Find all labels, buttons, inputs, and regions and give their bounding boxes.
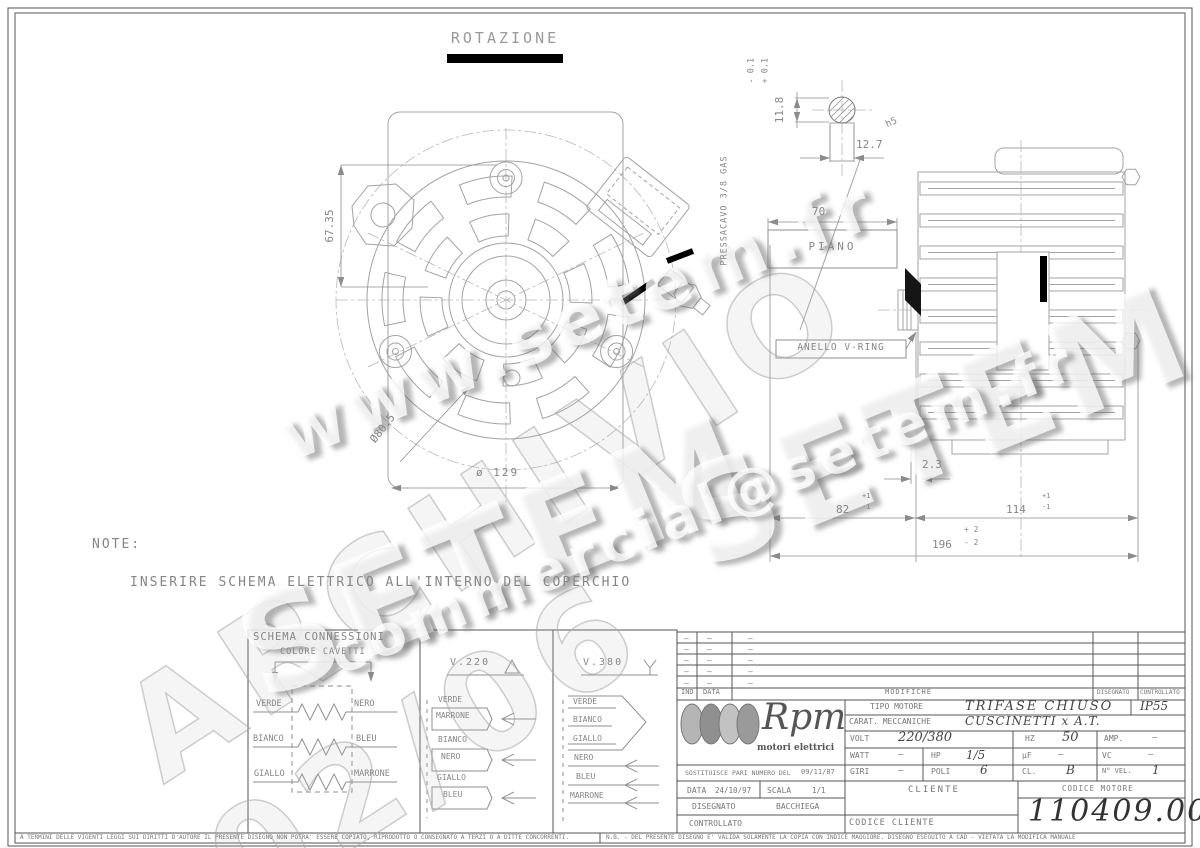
terminal-box bbox=[585, 156, 690, 258]
nvel-label: N° VEL. bbox=[1102, 768, 1132, 776]
revision-dash: – bbox=[748, 668, 753, 677]
setem-url-watermark: www.setem.fr bbox=[265, 161, 888, 478]
protezione-value: IP55 bbox=[1140, 700, 1168, 713]
v380-wire: BLEU bbox=[576, 773, 595, 782]
uf-value: – bbox=[1058, 751, 1063, 761]
dim-11-8: 11.8 bbox=[774, 88, 786, 132]
revision-dash: – bbox=[684, 635, 689, 644]
poli-value: 6 bbox=[980, 764, 988, 777]
bolt-hex bbox=[1122, 169, 1140, 185]
dim-70: 70 bbox=[812, 206, 825, 218]
hp-value: 1/5 bbox=[966, 749, 985, 762]
winding-color: BIANCO bbox=[253, 735, 284, 744]
col-modifiche: MODIFICHE bbox=[885, 689, 932, 697]
v380-wire: BIANCO bbox=[573, 716, 602, 725]
footer-left: A TERMINI DELLE VIGENTI LEGGI SUI DIRITT… bbox=[20, 835, 569, 842]
tol-plus-01: + 0.1 bbox=[761, 50, 770, 92]
v220-title: V.220 bbox=[450, 657, 490, 668]
data-label: DATA bbox=[687, 787, 706, 796]
shaft-flinger bbox=[905, 268, 921, 316]
col-disegnato: DISEGNATO bbox=[1097, 690, 1130, 697]
archive-stamp-watermark: ARCHIVIO 02/06 bbox=[95, 78, 1193, 848]
nameplate bbox=[997, 252, 1049, 370]
v380-wire: VERDE bbox=[573, 698, 597, 707]
tipo-motore-value: TRIFASE CHIUSO bbox=[965, 700, 1113, 714]
motor-body bbox=[918, 172, 1125, 440]
v380-wire: MARRONE bbox=[570, 792, 604, 801]
revision-dash: – bbox=[748, 680, 753, 689]
pressacavo-label: PRESSACAVO 3/8 GAS bbox=[720, 162, 729, 266]
revision-dash: – bbox=[684, 668, 689, 677]
star-symbol bbox=[644, 660, 656, 675]
revision-dash: – bbox=[684, 646, 689, 655]
dim-flange-129: ø 129 bbox=[476, 467, 519, 479]
drawing-sheet: ROTAZIONE 67.35 Ø80.5 ø 129 PRESSACAVO 3… bbox=[0, 0, 1200, 848]
dim-114-tol-plus: +1 bbox=[1042, 493, 1050, 501]
nameplate-mark bbox=[1040, 256, 1047, 302]
colore-cavetti-label: COLORE CAVETTI bbox=[280, 648, 366, 657]
col-ind: IND bbox=[681, 689, 694, 697]
winding-color: VERDE bbox=[256, 700, 282, 709]
top-cover bbox=[995, 148, 1123, 174]
rpm-logo-graphic bbox=[681, 704, 759, 744]
cl-label: CL. bbox=[1022, 768, 1036, 777]
v380-title: V.380 bbox=[583, 657, 623, 668]
dim-196-tol-plus: + 2 bbox=[964, 526, 978, 535]
dim-82: 82 bbox=[836, 504, 849, 516]
hp-label: HP bbox=[931, 752, 941, 761]
delta-symbol bbox=[505, 660, 519, 673]
shaft-end bbox=[830, 123, 854, 161]
key-section bbox=[829, 97, 855, 123]
v220-wire: GIALLO bbox=[437, 774, 466, 783]
bolt-hex bbox=[1122, 333, 1140, 349]
v220-wire: VERDE bbox=[438, 696, 462, 705]
uf-label: µF bbox=[1022, 752, 1032, 761]
amp-value: – bbox=[1152, 734, 1157, 744]
sostituisce-date: 09/11/87 bbox=[801, 769, 835, 777]
volt-label: VOLT bbox=[850, 735, 869, 744]
revision-dash: – bbox=[748, 657, 753, 666]
poli-label: POLI bbox=[931, 768, 950, 777]
revision-dash: – bbox=[707, 646, 712, 655]
tipo-motore-label: TIPO MOTORE bbox=[870, 703, 923, 712]
revision-dash: – bbox=[684, 680, 689, 689]
sostituisce-label: SOSTITUISCE PARI NUMERO DEL bbox=[685, 770, 791, 777]
shaft-tolerance: h5 bbox=[884, 116, 899, 130]
setem-email-watermark: commercial@setem.fr bbox=[320, 328, 1087, 688]
giri-label: GIRI bbox=[850, 768, 869, 777]
amp-label: AMP. bbox=[1104, 735, 1123, 744]
flange-square bbox=[388, 112, 623, 488]
shaft bbox=[898, 290, 918, 330]
piano-label: PIANO bbox=[768, 241, 897, 253]
dim-12-7: 12.7 bbox=[856, 139, 883, 151]
vring-label: ANELLO V-RING bbox=[776, 343, 906, 353]
winding-color: NERO bbox=[354, 700, 374, 709]
revision-dash: – bbox=[748, 646, 753, 655]
col-controllato: CONTROLLATO bbox=[1140, 690, 1180, 697]
scala-value: 1/1 bbox=[812, 787, 826, 795]
revision-dash: – bbox=[707, 635, 712, 644]
scala-label: SCALA bbox=[767, 787, 791, 796]
black-mark bbox=[622, 281, 654, 303]
revision-dash: – bbox=[748, 635, 753, 644]
vc-label: VC bbox=[1102, 752, 1112, 761]
col-data: DATA bbox=[703, 689, 720, 697]
note-text: INSERIRE SCHEMA ELETTRICO ALL'INTERNO DE… bbox=[130, 576, 631, 590]
dim-114: 114 bbox=[1006, 504, 1026, 516]
controllato-label: CONTROLLATO bbox=[689, 820, 742, 829]
schema-title: SCHEMA CONNESSIONI bbox=[253, 632, 385, 644]
hz-label: HZ bbox=[1025, 735, 1035, 744]
cl-value: B bbox=[1066, 764, 1075, 777]
winding-color: BLEU bbox=[356, 735, 376, 744]
tol-minus-01: - 0.1 bbox=[747, 50, 756, 92]
lifting-boss bbox=[352, 184, 414, 246]
logo-name: Rpm bbox=[762, 698, 846, 738]
codice-cliente-label: CODICE CLIENTE bbox=[849, 819, 935, 828]
watt-value: – bbox=[898, 751, 903, 761]
rotation-label: ROTAZIONE bbox=[445, 30, 565, 47]
vc-value: – bbox=[1148, 751, 1153, 761]
volt-value: 220/380 bbox=[898, 731, 952, 745]
cliente-label: CLIENTE bbox=[908, 786, 960, 796]
nvel-value: 1 bbox=[1152, 764, 1160, 777]
watt-label: WATT bbox=[850, 752, 869, 761]
disegnato-value: BACCHIEGA bbox=[776, 803, 819, 812]
data-value: 24/10/97 bbox=[715, 787, 751, 795]
revision-dash: – bbox=[707, 668, 712, 677]
v220-wire: BIANCO bbox=[438, 736, 467, 745]
v380-wire: GIALLO bbox=[573, 735, 602, 744]
v380-wire: NERO bbox=[574, 754, 593, 763]
v220-wire: NERO bbox=[441, 753, 460, 762]
dim-82-tol-plus: +1 bbox=[862, 493, 870, 501]
dim-2-3: 2.3 bbox=[922, 459, 942, 471]
black-mark bbox=[667, 251, 693, 261]
revision-dash: – bbox=[707, 680, 712, 689]
dim-82-tol-minus: -1 bbox=[862, 504, 870, 512]
carat-value: CUSCINETTI x A.T. bbox=[965, 715, 1101, 728]
disegnato-label: DISEGNATO bbox=[692, 803, 735, 812]
dim-bolt-circle: Ø80.5 bbox=[368, 412, 398, 446]
footer-right: N.B. - DEL PRESENTE DISEGNO E' VALIDA SO… bbox=[606, 835, 1076, 842]
v220-wire: BLEU bbox=[443, 791, 462, 800]
revision-dash: – bbox=[684, 657, 689, 666]
winding-color: GIALLO bbox=[254, 770, 285, 779]
hz-value: 50 bbox=[1062, 731, 1079, 745]
dim-196: 196 bbox=[932, 539, 952, 551]
rotation-arrow-bar bbox=[447, 54, 563, 63]
carat-label: CARAT. MECCANICHE bbox=[849, 718, 931, 727]
winding-color: MARRONE bbox=[354, 770, 390, 779]
dim-67-35: 67.35 bbox=[324, 198, 336, 254]
cable-gland bbox=[656, 267, 715, 321]
winding-frame bbox=[292, 686, 352, 792]
logo-subtitle: motori elettrici bbox=[757, 744, 834, 754]
setem-brand-watermark: SETEM bbox=[655, 253, 1200, 600]
codice-motore-value: 110409.00 bbox=[1028, 795, 1200, 828]
dim-196-tol-minus: - 2 bbox=[964, 539, 978, 548]
revision-dash: – bbox=[707, 657, 712, 666]
v220-wire: MARRONE bbox=[436, 712, 470, 721]
codice-motore-label: CODICE MOTORE bbox=[1062, 785, 1134, 793]
giri-value: – bbox=[898, 767, 903, 777]
note-label: NOTE: bbox=[92, 538, 141, 552]
setem-brand-watermark: SETEM bbox=[215, 383, 773, 730]
dim-114-tol-minus: -1 bbox=[1042, 504, 1050, 512]
